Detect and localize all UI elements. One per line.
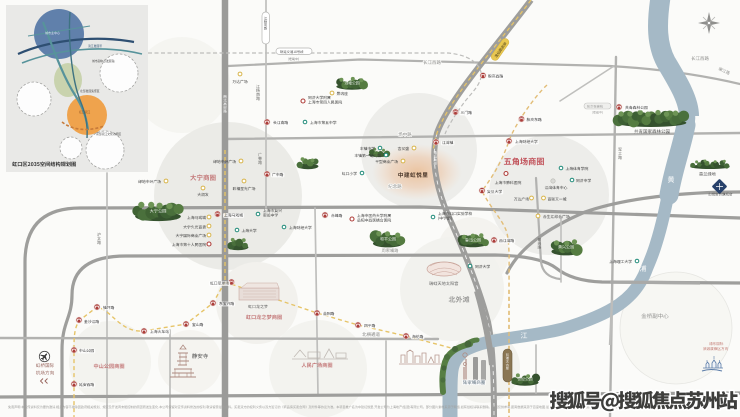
- svg-text:北部发展集聚区: 北部发展集聚区: [80, 89, 100, 93]
- svg-text:城市主中心: 城市主中心: [45, 30, 60, 35]
- svg-text:滨江发展带: 滨江发展带: [88, 44, 102, 48]
- svg-text:虹口滨江: 虹口滨江: [79, 110, 90, 114]
- svg-text:南部滨江文化功能区: 南部滨江文化功能区: [96, 132, 121, 136]
- svg-text:城市副中心发展轴: 城市副中心发展轴: [92, 59, 115, 63]
